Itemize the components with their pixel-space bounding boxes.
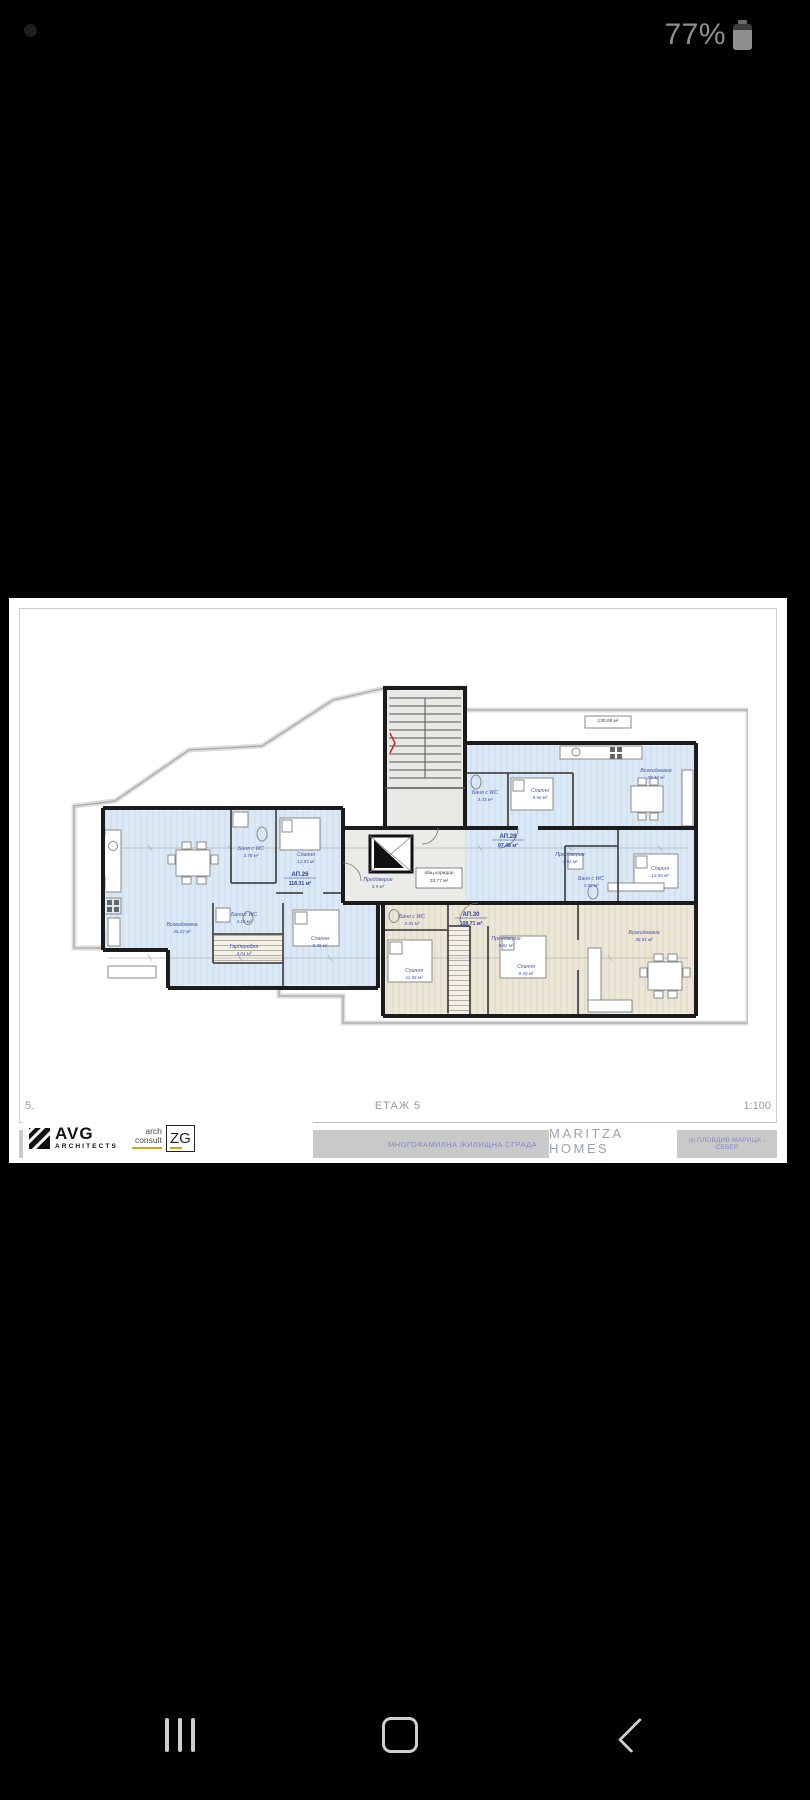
avg-logo-icon [29,1128,50,1149]
room-label: Преддверие [491,936,520,942]
room-label: 13.89 м² [651,873,669,878]
room-label: 130.08 м² [598,718,619,724]
room-label: 4.92 м² [563,859,578,864]
room-label: 3.93 м² [584,883,599,888]
room-label: 3.91 м² [405,921,420,926]
home-icon [382,1717,418,1753]
room-label: 9.82 м² [499,943,514,948]
room-label: 3.43 м² [478,797,493,802]
arch-consult-zg-logo: arch consult ZG [132,1125,195,1152]
zg-logo-line2: consult [135,1136,162,1145]
room-label: 9.76 м² [313,943,328,948]
project-name: МНОГОФАМИЛНА ЖИЛИЩНА СГРАДА [388,1140,537,1149]
room-label: 4.15 м² [237,919,252,924]
room-label: 12.91 м² [297,859,315,864]
room-label: Всекидневна [640,768,671,774]
logo-area: AVG ARCHITECTS arch consult ZG [23,1118,313,1158]
room-label: общ.коридор [425,870,454,876]
elevator [370,836,412,872]
recents-icon [165,1718,195,1752]
avg-logo-sub: ARCHITECTS [55,1144,118,1151]
back-button[interactable] [590,1690,680,1780]
floor-plan: Всекидневна36.22 м²Баня с WC3.78 м²Спалн… [48,678,748,1050]
battery-percent: 77% [664,18,726,52]
room-label: Спалня [405,968,423,974]
room-label: 9.56 м² [533,795,548,800]
room-label: Баня с WC [578,876,604,882]
room-label: 11.56 м² [405,975,423,980]
avg-logo-name: AVG [55,1125,118,1142]
room-label: 38.51 м² [635,937,653,942]
room-label: Спалня [297,852,315,858]
sheet-scale: 1:100 [743,1100,771,1112]
sheet-title: ЕТАЖ 5 [23,1100,773,1112]
room-label: АП.30 [463,912,481,918]
room-label: 33.77 м² [430,878,449,884]
room-label: 6.9 м² [372,884,385,889]
brand-box: MARITZA HOMES [549,1124,677,1158]
zg-logo-mark: ZG [166,1125,195,1152]
room-label: АП.28 [500,834,518,840]
room-label: 3.78 м² [244,853,259,858]
room-label: Преддверие [363,877,392,883]
recents-button[interactable] [135,1690,225,1780]
home-button[interactable] [355,1690,445,1780]
room-label: Баня с WC [231,912,257,918]
room-label: 4.01 м² [237,951,252,956]
project-location: гр.ПЛОВДИВ МАРИЦА - СЕВЕР [677,1137,777,1151]
room-label: 36.22 м² [173,929,191,934]
zg-logo-accent-bar [132,1147,162,1149]
camera-punch-hole [24,24,37,37]
room-label: Гардеробна [230,944,259,950]
status-bar: 77% [0,0,810,80]
room-label: Баня с WC [238,846,264,852]
floorplan-document[interactable]: Всекидневна36.22 м²Баня с WC3.78 м²Спалн… [9,598,787,1163]
avg-architects-logo: AVG ARCHITECTS [29,1125,118,1151]
room-label: Спалня [311,936,329,942]
battery-icon [733,20,752,50]
room-label: АП.26 [292,872,310,878]
room-label: Всекидневна [166,922,197,928]
android-nav-bar [0,1690,810,1800]
room-label: 108.71 м² [460,921,483,927]
sheet-footer: 5. ЕТАЖ 5 1:100 [23,1098,773,1118]
brand-name: MARITZA HOMES [549,1126,677,1156]
room-label: Спалня [517,964,535,970]
room-label: 97.46 м² [498,843,518,849]
room-label: Спалня [651,866,669,872]
room-label: Баня с WC [472,790,498,796]
room-label: Преддверие [555,852,584,858]
room-label: 29.42 м² [646,775,665,780]
room-label: Всекидневна [628,930,659,936]
room-label: 118.31 м² [289,881,312,887]
room-label: 9.43 м² [519,971,534,976]
back-icon [617,1717,652,1752]
room-label: Спалня [531,788,549,794]
room-label: Баня с WC [399,914,425,920]
